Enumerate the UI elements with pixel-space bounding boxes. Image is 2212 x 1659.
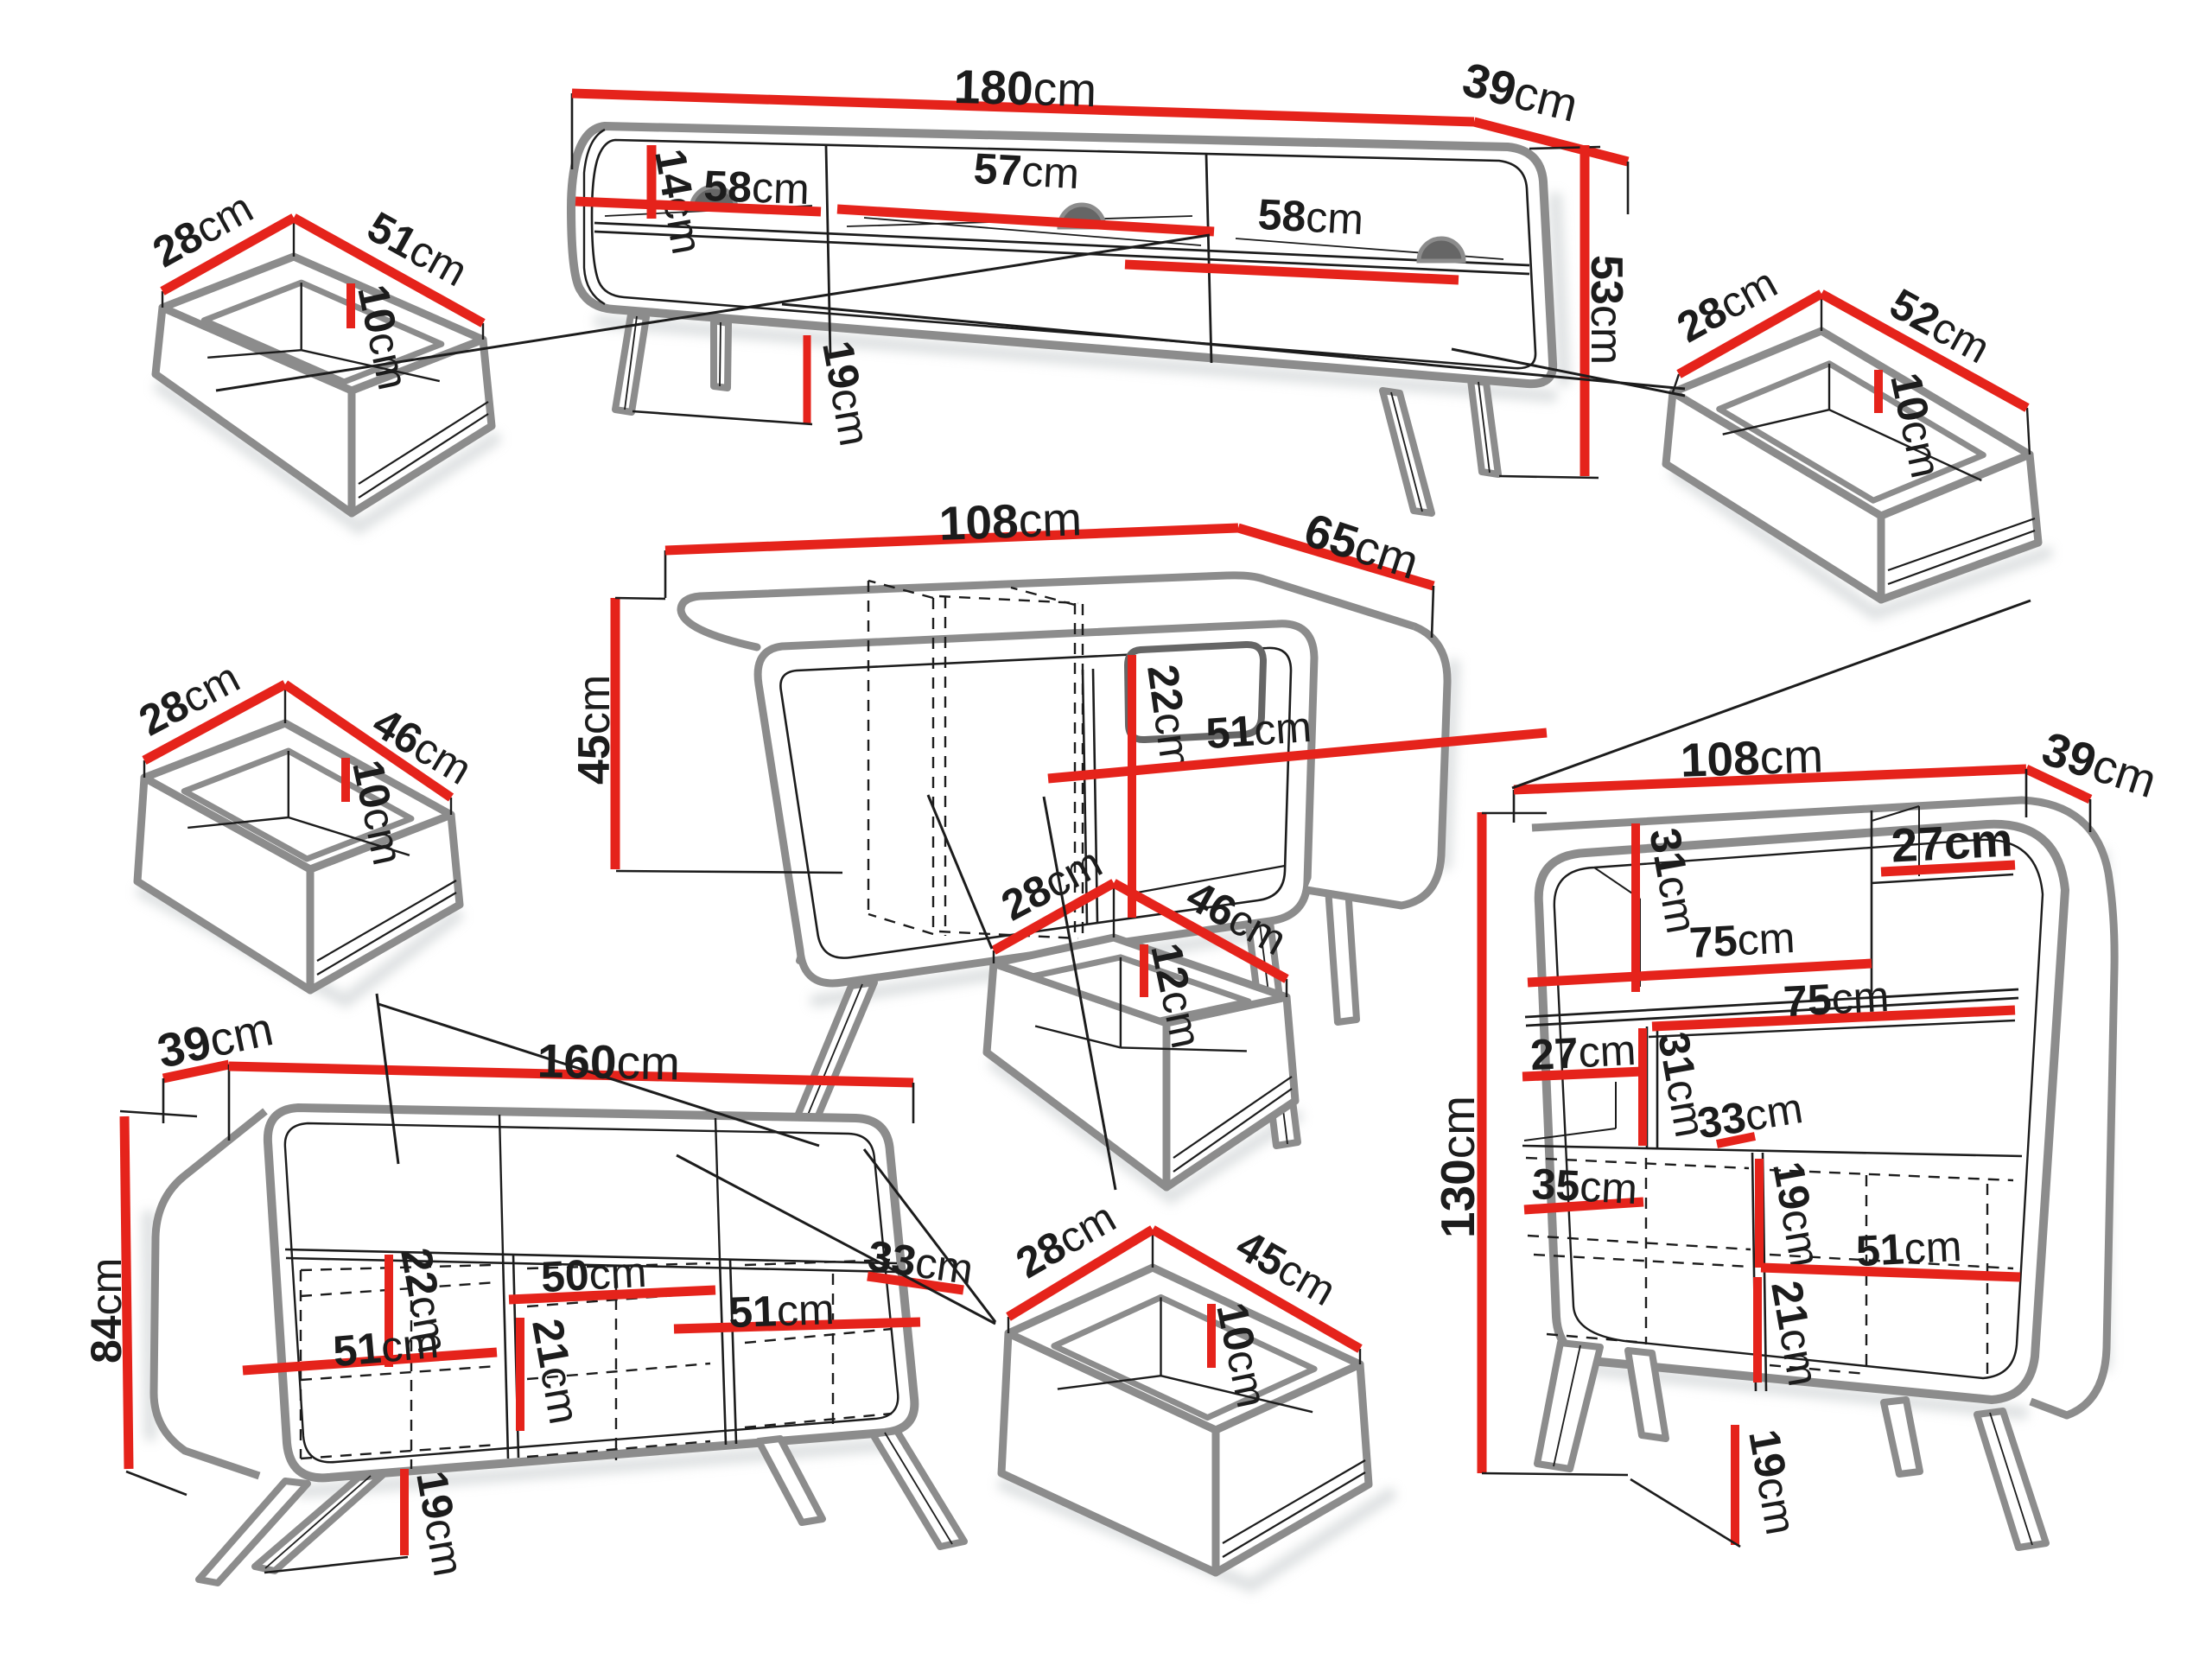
svg-text:35cm: 35cm: [1530, 1160, 1638, 1213]
svg-text:84cm: 84cm: [82, 1258, 130, 1363]
svg-text:51cm: 51cm: [728, 1285, 835, 1337]
svg-text:27cm: 27cm: [1890, 812, 2014, 872]
svg-text:27cm: 27cm: [1529, 1026, 1637, 1079]
svg-text:58cm: 58cm: [703, 162, 810, 213]
svg-text:50cm: 50cm: [540, 1248, 648, 1301]
svg-text:180cm: 180cm: [953, 60, 1097, 117]
svg-text:57cm: 57cm: [972, 144, 1080, 198]
svg-text:53cm: 53cm: [1581, 255, 1631, 365]
svg-text:75cm: 75cm: [1688, 913, 1796, 967]
svg-text:108cm: 108cm: [1680, 728, 1824, 787]
svg-text:108cm: 108cm: [938, 492, 1083, 550]
svg-text:45cm: 45cm: [569, 675, 620, 785]
svg-text:130cm: 130cm: [1431, 1096, 1484, 1238]
svg-text:58cm: 58cm: [1256, 190, 1364, 244]
svg-text:51cm: 51cm: [1855, 1222, 1963, 1275]
svg-text:51cm: 51cm: [331, 1319, 441, 1376]
svg-text:75cm: 75cm: [1783, 972, 1891, 1026]
svg-text:51cm: 51cm: [1205, 702, 1313, 758]
